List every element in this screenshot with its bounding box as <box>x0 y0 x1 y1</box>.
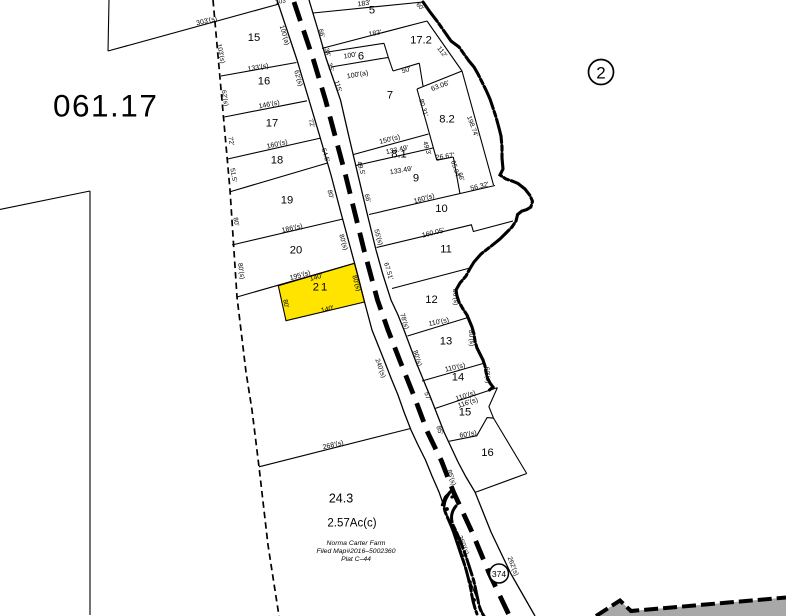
svg-text:24.3: 24.3 <box>329 492 353 506</box>
svg-text:21: 21 <box>313 282 329 294</box>
svg-text:11: 11 <box>440 244 452 256</box>
svg-text:20: 20 <box>290 245 302 257</box>
svg-text:7: 7 <box>387 90 393 102</box>
svg-text:80': 80' <box>281 299 289 309</box>
svg-text:10: 10 <box>435 203 447 215</box>
svg-text:8.2: 8.2 <box>439 114 455 126</box>
svg-text:2.57Ac(c): 2.57Ac(c) <box>327 518 376 530</box>
svg-text:14: 14 <box>452 372 464 384</box>
svg-text:80'(s): 80'(s) <box>467 330 475 347</box>
svg-text:Norma Carter Farm: Norma Carter Farm <box>327 540 386 547</box>
svg-text:16: 16 <box>481 447 493 459</box>
svg-text:60'(s): 60'(s) <box>483 367 491 384</box>
svg-text:6: 6 <box>358 51 364 63</box>
svg-text:72': 72' <box>226 136 234 146</box>
svg-text:13: 13 <box>440 336 452 348</box>
svg-text:374: 374 <box>492 569 507 579</box>
svg-text:15: 15 <box>248 32 260 44</box>
svg-text:Plat C–44: Plat C–44 <box>341 556 371 563</box>
svg-text:Filed Map#2016–5002360: Filed Map#2016–5002360 <box>317 548 396 555</box>
svg-text:80': 80' <box>231 217 239 227</box>
svg-text:16: 16 <box>258 76 270 88</box>
svg-text:18: 18 <box>271 155 283 167</box>
svg-text:17.2: 17.2 <box>410 35 432 47</box>
svg-text:061.17: 061.17 <box>53 88 158 124</box>
svg-text:9: 9 <box>413 173 419 185</box>
svg-text:2: 2 <box>596 64 605 83</box>
svg-text:17: 17 <box>266 118 278 130</box>
svg-text:19: 19 <box>281 195 293 207</box>
svg-text:86'(s): 86'(s) <box>451 289 459 306</box>
svg-text:12: 12 <box>425 294 437 306</box>
